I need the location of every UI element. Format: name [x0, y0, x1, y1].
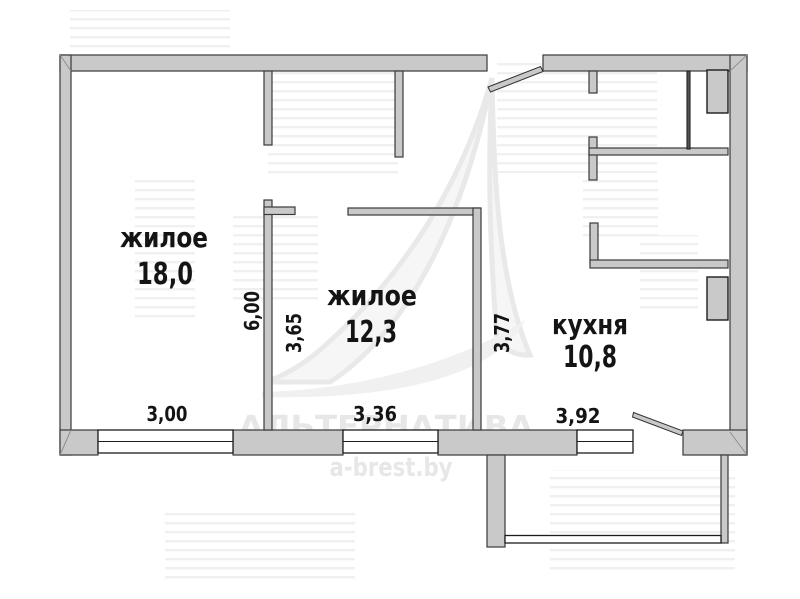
dim-vertical-living2: 3,65	[282, 313, 306, 353]
vent-shaft-top	[707, 70, 728, 113]
room-area-living2: 12,3	[345, 315, 397, 350]
dim-vertical-living1: 6,00	[240, 291, 264, 331]
wall-wc-duct	[687, 71, 690, 149]
room-area-kitchen: 10,8	[563, 340, 617, 375]
wall-outer-bottom-2	[233, 430, 343, 455]
dim-bottom-living1: 3,00	[147, 402, 188, 426]
balcony-door-leaf	[633, 413, 684, 436]
wall-living2-top	[348, 208, 480, 215]
wall-bath-kitchen	[590, 260, 728, 268]
wall-hall-divider	[395, 71, 403, 157]
floorplan-canvas: АЛЬТЕРНАТИВА a-brest.by	[0, 0, 800, 599]
wall-outer-left	[60, 55, 71, 455]
balcony-wall-left	[487, 455, 505, 547]
room-label-living2: жилое	[327, 279, 417, 312]
watermark-site-text: a-brest.by	[330, 453, 453, 483]
wall-outer-right	[730, 55, 747, 455]
hatch-patch	[70, 10, 230, 48]
wall-living2-top-stub	[264, 207, 295, 215]
dim-bottom-kitchen: 3,92	[556, 404, 601, 428]
wall-wc-divider	[589, 148, 728, 155]
balcony-rail-right	[721, 455, 728, 543]
hatch-patch	[233, 215, 318, 300]
hatch-patch	[165, 512, 355, 584]
room-area-living1: 18,0	[137, 257, 193, 292]
balcony-rail-bottom	[505, 536, 721, 544]
wall-living1-lower	[264, 200, 272, 430]
hatch-patch	[640, 235, 698, 315]
dim-bottom-living2: 3,36	[353, 402, 397, 426]
wall-wc-stub-bottom	[590, 223, 598, 263]
wall-outer-bottom-3	[438, 430, 577, 455]
wall-wc-stub-mid	[589, 137, 597, 180]
wall-outer-top-left	[60, 55, 487, 71]
floorplan-drawing: АЛЬТЕРНАТИВА a-brest.by	[0, 0, 800, 599]
wall-outer-top-right	[543, 55, 747, 71]
room-label-living1: жилое	[120, 221, 208, 254]
hatch-patch	[550, 470, 735, 570]
wall-living1-upper	[264, 71, 272, 145]
wall-living2-right	[473, 208, 481, 430]
vent-shaft-kitchen	[707, 277, 728, 320]
wall-wc-stub-top	[589, 71, 597, 93]
hatch-patch	[268, 62, 398, 174]
dim-vertical-kitchen: 3,77	[490, 313, 514, 353]
room-label-kitchen: кухня	[552, 308, 628, 341]
